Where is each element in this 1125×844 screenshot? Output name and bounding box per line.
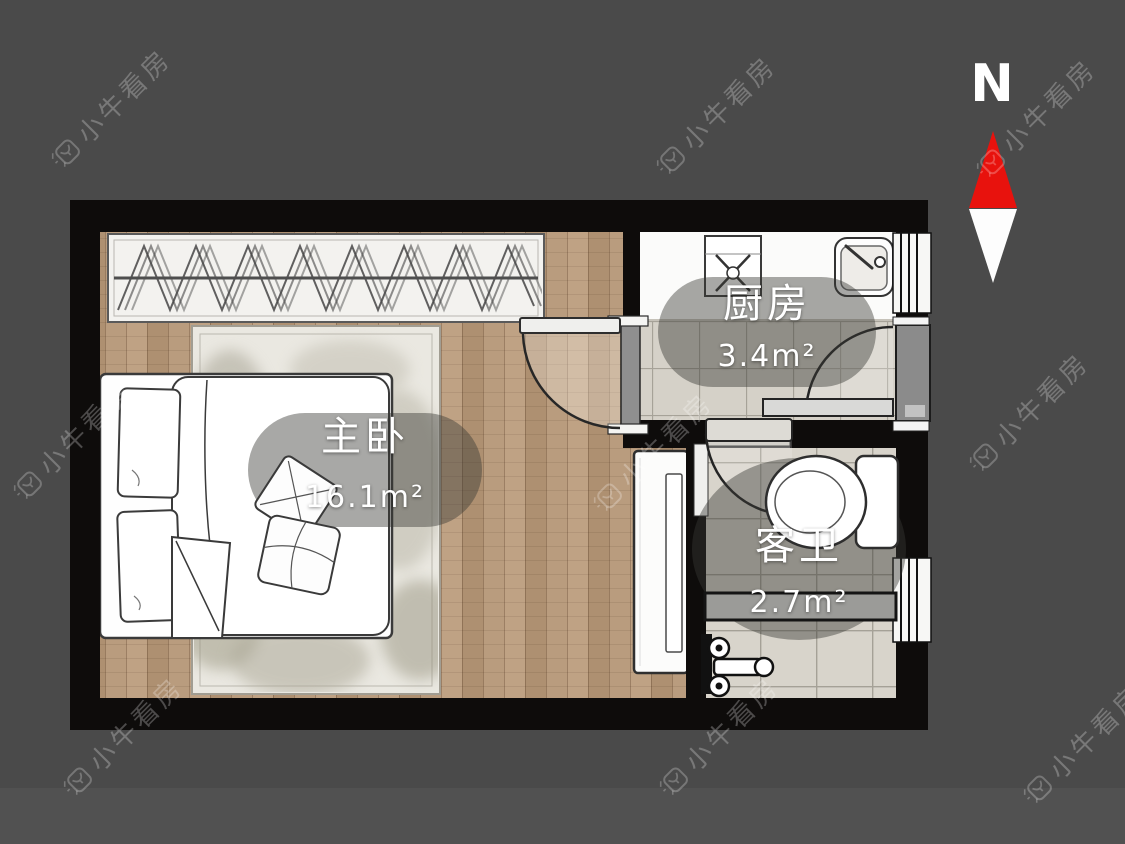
room-label-guest-bathroom: 客卫 2.7m² [692, 526, 906, 618]
kitchen-window [893, 233, 931, 313]
room-area: 2.7m² [750, 588, 849, 618]
room-label-kitchen: 厨房 3.4m² [658, 284, 876, 372]
door-leaf [763, 399, 893, 416]
floor-plan [0, 0, 1125, 844]
door-leaf [706, 419, 792, 441]
compass-north-label: N [962, 58, 1022, 110]
wardrobe [634, 451, 688, 673]
compass-needle-north-icon [969, 131, 1017, 208]
room-area: 3.4m² [718, 342, 817, 372]
room-name: 厨房 [723, 284, 811, 324]
floor-plan-page: 主卧 16.1m² 厨房 3.4m² 客卫 2.7m² N 小牛看房 小牛看房 … [0, 0, 1125, 844]
radiator [108, 234, 548, 322]
door-leaf [520, 318, 620, 333]
room-area: 16.1m² [305, 483, 425, 513]
room-label-master-bedroom: 主卧 16.1m² [248, 417, 482, 513]
compass-needle-south-icon [969, 209, 1017, 283]
room-name: 客卫 [755, 526, 843, 566]
room-name: 主卧 [321, 417, 409, 457]
bed-pillow [118, 388, 181, 498]
